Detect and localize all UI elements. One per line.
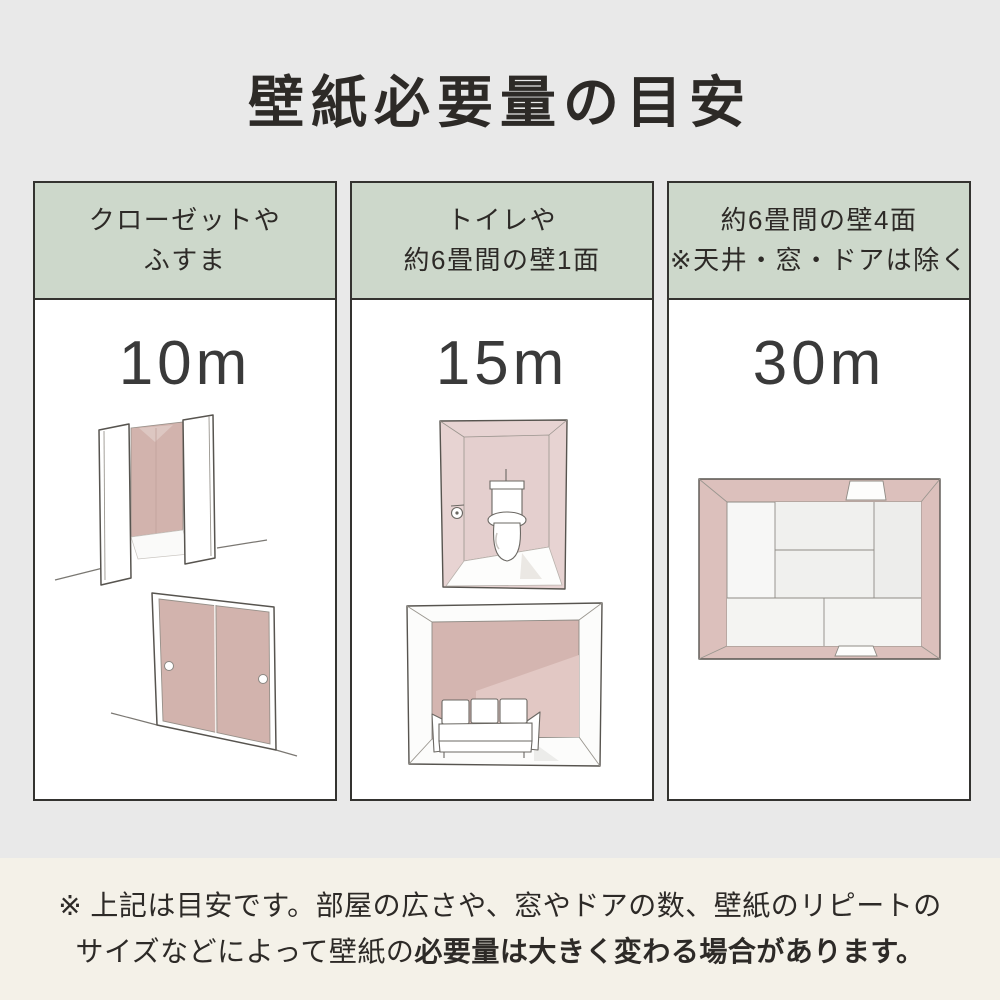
room-topview-illustration bbox=[689, 453, 961, 675]
panel-header-line-1: クローゼットや bbox=[89, 205, 282, 236]
panel-toilet-one-wall: トイレや 約6畳間の壁1面 15m bbox=[350, 181, 654, 801]
panel-header: トイレや 約6畳間の壁1面 bbox=[352, 183, 652, 300]
page-title: 壁紙必要量の目安 bbox=[0, 58, 1000, 139]
living-room-illustration bbox=[394, 593, 622, 781]
toilet-room-illustration bbox=[400, 403, 612, 595]
panel-header-line-2: ふすま bbox=[144, 245, 227, 276]
panel-value: 15m bbox=[352, 328, 652, 399]
note-line-1: ※ 上記は目安です。部屋の広さや、窓やドアの数、壁紙のリピートの bbox=[0, 883, 1000, 929]
note-line-2-bold: 必要量は大きく変わる場合があります。 bbox=[414, 936, 924, 967]
panel-closet-fusuma: クローゼットや ふすま 10m bbox=[33, 181, 337, 801]
fusuma-illustration bbox=[59, 578, 339, 783]
panel-value: 10m bbox=[35, 328, 335, 399]
panels-row: クローゼットや ふすま 10m bbox=[33, 181, 971, 801]
panel-header: 約6畳間の壁4面 ※天井・窓・ドアは除く bbox=[669, 183, 969, 300]
panel-value: 30m bbox=[669, 328, 969, 399]
note-line-2-normal: サイズなどによって壁紙の bbox=[75, 936, 414, 967]
note-line-2: サイズなどによって壁紙の必要量は大きく変わる場合があります。 bbox=[0, 929, 1000, 975]
panel-header-line-2: 約6畳間の壁1面 bbox=[404, 245, 601, 276]
panel-header-line-1: トイレや bbox=[447, 205, 557, 236]
panel-header: クローゼットや ふすま bbox=[35, 183, 335, 300]
panel-four-walls: 約6畳間の壁4面 ※天井・窓・ドアは除く 30m bbox=[667, 181, 971, 801]
note-section: ※ 上記は目安です。部屋の広さや、窓やドアの数、壁紙のリピートの サイズなどによ… bbox=[0, 858, 1000, 1000]
closet-illustration bbox=[41, 398, 331, 593]
note-text: ※ 上記は目安です。部屋の広さや、窓やドアの数、壁紙のリピートの サイズなどによ… bbox=[0, 858, 1000, 975]
page: 壁紙必要量の目安 クローゼットや ふすま 10m bbox=[0, 0, 1000, 1000]
panel-header-line-2: ※天井・窓・ドアは除く bbox=[670, 245, 968, 276]
panel-header-line-1: 約6畳間の壁4面 bbox=[721, 205, 918, 236]
